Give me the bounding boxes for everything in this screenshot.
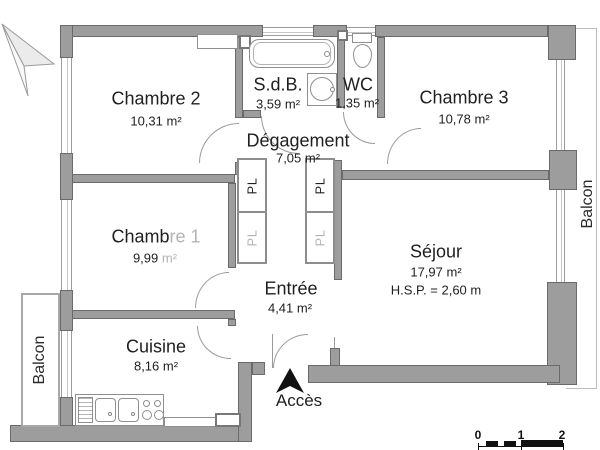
window [61,58,72,153]
wall-segment [252,362,265,375]
room-label-entree: Entrée [264,279,317,300]
room-area-cuisine: 8,16 m² [134,359,178,374]
threshold-ledge [164,417,217,427]
wall-niche [197,34,238,49]
wall-segment [308,365,560,383]
wall-segment [334,160,342,280]
scale-solid [521,440,563,446]
washbasin-drain [330,87,335,92]
door-leaf [272,334,273,368]
closet-divider [238,211,266,213]
wall-segment [60,397,73,427]
room-label-chambre2: Chambre 2 [111,89,200,110]
closet-label: PL [313,178,328,195]
room-area-chambre1-faded: m² [162,251,177,266]
room-area-chambre3: 10,78 m² [438,112,489,127]
window [263,27,313,36]
stove-burner [142,410,152,420]
balcony-right-top [576,28,596,29]
wall-segment [549,150,577,190]
bathtub-faucet [324,51,330,57]
bathtub-inner [253,42,331,65]
wall-segment [228,319,236,326]
room-ceiling-sejour: H.S.P. = 2,60 m [391,283,481,298]
toilet-tank [352,33,372,43]
scale-dash [504,441,516,446]
room-area-chambre1-dark: 9,99 [133,251,162,266]
floor-plan: PL PL PL PL Balcon Balcon Chambre 2 10,3… [0,0,600,450]
room-label-cuisine: Cuisine [126,337,186,358]
room-label-wc: WC [343,75,373,96]
scale-tick [478,443,479,450]
stove-burner [143,400,150,407]
wall-segment [548,25,576,60]
toilet-bowl [353,44,372,68]
closet-divider [306,211,334,213]
wall-segment [235,37,243,118]
door-arc-chambre2 [199,123,239,163]
north-arrow-icon [0,14,58,100]
sink-drain [131,412,135,416]
wall-segment [72,310,235,319]
balcony-right-label: Balcon [579,180,597,229]
room-label-chambre3: Chambre 3 [419,88,508,109]
wall-segment [72,174,235,183]
wall-segment [60,25,73,58]
wall-segment [238,362,252,442]
wall-segment [330,348,340,366]
kitchen-sink-basin [95,398,116,422]
room-area-sejour: 17,97 m² [410,265,461,280]
scale-number-1: 1 [518,428,525,442]
room-area-degagement: 7,05 m² [276,151,320,166]
closet-label: PL [245,230,260,247]
closet-label: PL [313,230,328,247]
kitchen-sink-basin [118,398,139,422]
room-label-sdb: S.d.B. [253,75,302,96]
closet-left [237,158,267,264]
window [61,331,72,397]
room-area-chambre2: 10,31 m² [130,114,181,129]
threshold [215,413,241,427]
room-label-degagement: Dégagement [246,131,349,152]
scale-number-0: 0 [475,428,482,442]
room-label-chambre1-faded: re 1 [170,227,201,247]
scale-tick [563,443,564,450]
wall-segment [10,425,252,442]
wall-segment [375,25,548,37]
access-arrow-icon [276,368,304,393]
sink-drain [108,412,112,416]
balcony-left-label: Balcon [31,336,49,385]
wall-segment [342,170,549,180]
access-label: Accès [276,391,322,411]
door-arc-chambre3 [387,128,421,164]
dish-drainer [78,397,93,423]
closet-label: PL [245,178,260,195]
balcony-right-floor [566,388,596,389]
door-arc-entrance [273,334,308,368]
room-label-chambre1-dark: Chamb [111,227,169,247]
window [556,190,565,282]
room-area-sdb: 3,59 m² [256,97,300,112]
stove-burner [154,400,161,407]
room-area-chambre1: 9,99 m² [133,251,177,266]
room-label-chambre1: Chambre 1 [111,227,200,248]
room-label-sejour: Séjour [410,242,462,263]
room-area-wc: 1,35 m² [335,96,379,111]
window [61,200,72,290]
room-area-entree: 4,41 m² [268,301,312,316]
door-arc-cuisine [197,326,231,359]
scale-dash [486,441,498,446]
scale-number-2: 2 [559,428,566,442]
closet-right [305,158,335,264]
window [556,60,565,150]
wall-line [334,337,335,348]
wall-duct [337,30,348,41]
door-arc-chambre1 [195,272,229,308]
wall-segment [228,183,236,268]
stove-burner [154,410,164,420]
